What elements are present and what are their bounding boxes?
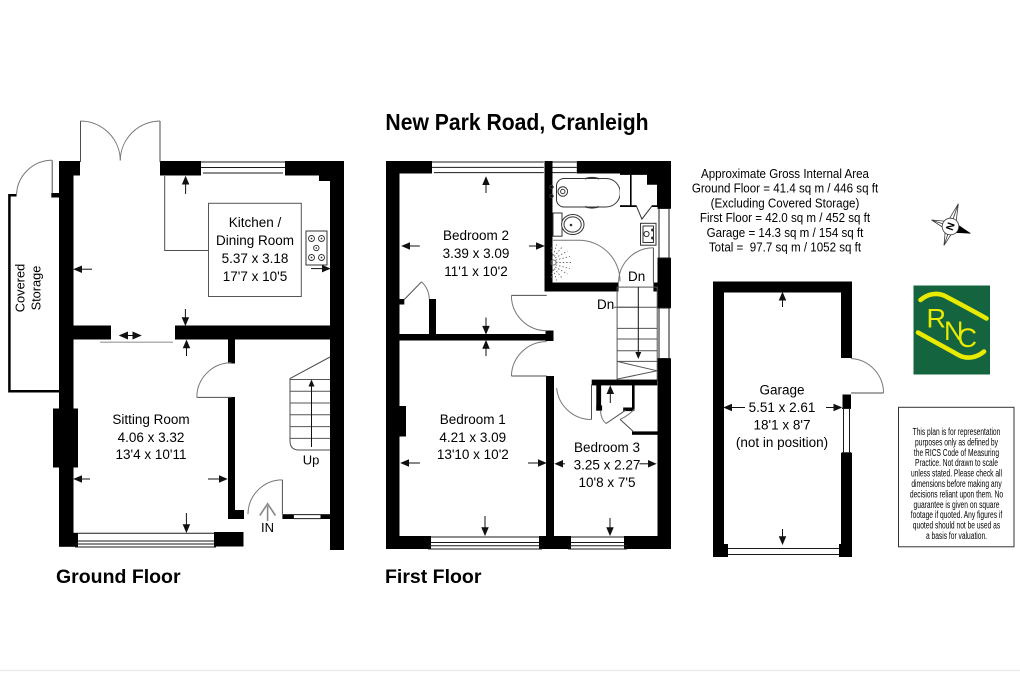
svg-text:Covered: Covered bbox=[13, 264, 28, 312]
svg-text:11'1 x 10'2: 11'1 x 10'2 bbox=[444, 264, 507, 279]
svg-text:Garage: Garage bbox=[759, 383, 804, 398]
svg-text:(Excluding Covered Storage): (Excluding Covered Storage) bbox=[711, 196, 860, 211]
svg-text:Storage: Storage bbox=[29, 266, 44, 311]
svg-text:Bedroom 2: Bedroom 2 bbox=[443, 228, 509, 243]
svg-text:5.37 x 3.18: 5.37 x 3.18 bbox=[222, 251, 289, 266]
svg-text:IN: IN bbox=[261, 520, 274, 535]
svg-text:Kitchen /: Kitchen / bbox=[229, 215, 282, 230]
svg-text:4.21 x 3.09: 4.21 x 3.09 bbox=[439, 430, 506, 445]
svg-text:13'4 x 10'11: 13'4 x 10'11 bbox=[116, 447, 187, 462]
svg-text:Dn: Dn bbox=[628, 269, 645, 284]
svg-text:Sitting Room: Sitting Room bbox=[112, 412, 189, 427]
svg-text:Bedroom 1: Bedroom 1 bbox=[440, 412, 506, 427]
svg-text:10'8 x 7'5: 10'8 x 7'5 bbox=[579, 475, 636, 490]
svg-text:3.39 x 3.09: 3.39 x 3.09 bbox=[443, 246, 510, 261]
svg-text:13'10 x 10'2: 13'10 x 10'2 bbox=[437, 447, 509, 462]
svg-text:Ground Floor: Ground Floor bbox=[56, 566, 181, 588]
svg-text:(not in position): (not in position) bbox=[736, 435, 828, 450]
svg-text:New Park Road, Cranleigh: New Park Road, Cranleigh bbox=[385, 109, 648, 135]
svg-text:Total = 97.7 sq m / 1052 sq f: Total = 97.7 sq m / 1052 sq ft bbox=[709, 240, 862, 255]
svg-text:First Floor = 42.0 sq m / 452: First Floor = 42.0 sq m / 452 sq ft bbox=[700, 211, 871, 226]
svg-text:3.25 x 2.27: 3.25 x 2.27 bbox=[574, 458, 641, 473]
svg-text:Ground Floor = 41.4 sq m / 446: Ground Floor = 41.4 sq m / 446 sq ft bbox=[692, 181, 879, 196]
svg-text:5.51 x 2.61: 5.51 x 2.61 bbox=[749, 400, 816, 415]
svg-text:Approximate Gross Internal Are: Approximate Gross Internal Area bbox=[701, 167, 869, 182]
svg-text:Bedroom 3: Bedroom 3 bbox=[574, 440, 640, 455]
svg-text:18'1 x 8'7: 18'1 x 8'7 bbox=[754, 418, 811, 433]
svg-text:17'7 x 10'5: 17'7 x 10'5 bbox=[223, 269, 287, 284]
svg-text:a basis for valuation.: a basis for valuation. bbox=[926, 530, 987, 542]
svg-text:Up: Up bbox=[303, 453, 320, 468]
svg-text:Dining Room: Dining Room bbox=[216, 233, 294, 248]
svg-text:4.06 x 3.32: 4.06 x 3.32 bbox=[118, 430, 185, 445]
svg-text:First Floor: First Floor bbox=[385, 566, 482, 588]
svg-text:Garage = 14.3 sq m / 154 sq ft: Garage = 14.3 sq m / 154 sq ft bbox=[707, 225, 864, 240]
svg-text:Dn: Dn bbox=[597, 297, 614, 312]
svg-text:C: C bbox=[958, 323, 978, 353]
